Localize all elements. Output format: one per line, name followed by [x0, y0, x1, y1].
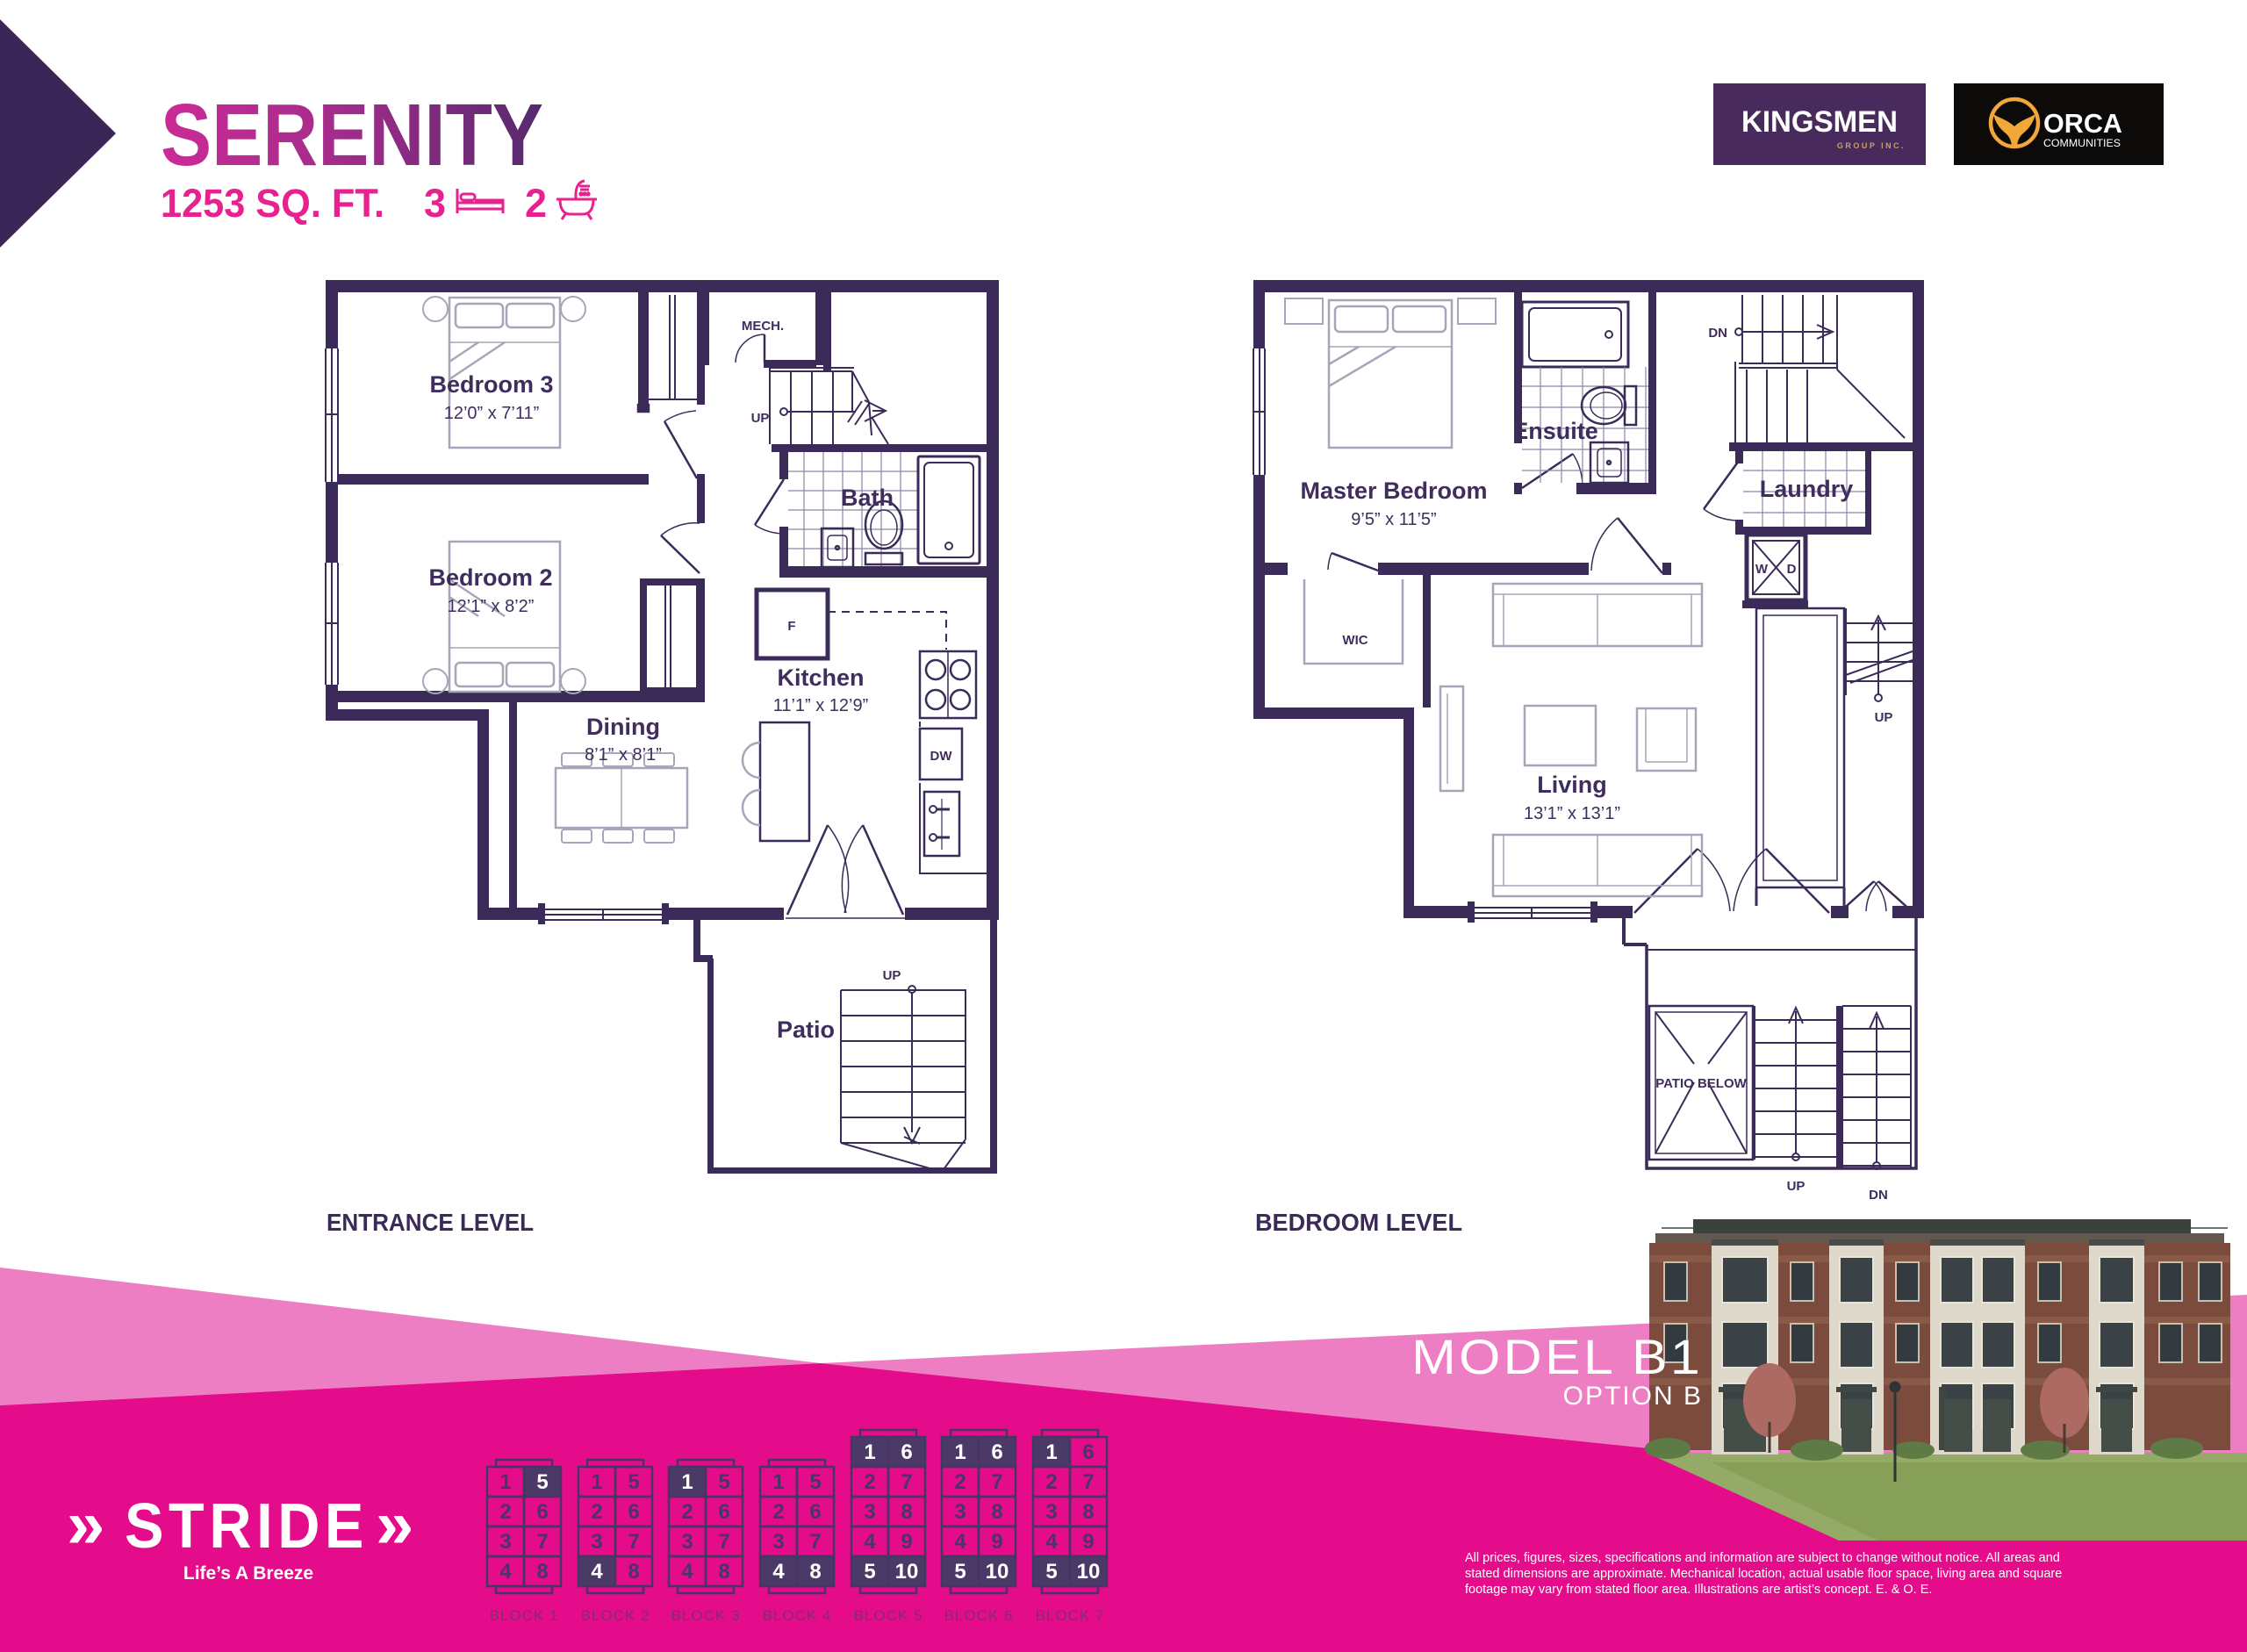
svg-text:4: 4	[954, 1530, 966, 1554]
svg-text:Bedroom 3: Bedroom 3	[429, 371, 553, 398]
svg-text:2: 2	[681, 1500, 693, 1524]
svg-text:All prices, figures, sizes, sp: All prices, figures, sizes, specificatio…	[1465, 1551, 2060, 1565]
svg-text:BEDROOM LEVEL: BEDROOM LEVEL	[1255, 1209, 1462, 1236]
svg-text:BLOCK 3: BLOCK 3	[671, 1607, 741, 1624]
svg-text:BLOCK 5: BLOCK 5	[854, 1607, 923, 1624]
svg-text:3: 3	[772, 1530, 784, 1554]
svg-text:3: 3	[954, 1500, 966, 1524]
svg-text:8’1” x 8’1”: 8’1” x 8’1”	[585, 745, 662, 765]
svg-text:8: 8	[901, 1500, 912, 1524]
svg-text:9: 9	[901, 1530, 912, 1554]
svg-text:6: 6	[991, 1440, 1002, 1464]
svg-text:MECH.: MECH.	[742, 319, 784, 334]
svg-text:2: 2	[772, 1500, 784, 1524]
svg-text:6: 6	[536, 1500, 548, 1524]
svg-text:6: 6	[628, 1500, 639, 1524]
svg-text:Patio: Patio	[777, 1016, 835, 1043]
svg-text:8: 8	[536, 1560, 548, 1584]
svg-text:9: 9	[991, 1530, 1002, 1554]
svg-text:Bath: Bath	[841, 485, 894, 511]
svg-text:7: 7	[628, 1530, 639, 1554]
svg-text:Laundry: Laundry	[1760, 476, 1854, 502]
svg-text:UP: UP	[751, 411, 770, 426]
svg-text:PATIO BELOW: PATIO BELOW	[1655, 1076, 1747, 1091]
svg-text:Kitchen: Kitchen	[777, 664, 864, 691]
svg-text:5: 5	[954, 1560, 966, 1584]
svg-text:2: 2	[954, 1470, 966, 1494]
svg-text:UP: UP	[1787, 1179, 1805, 1194]
svg-text:5: 5	[809, 1470, 821, 1494]
svg-text:6: 6	[901, 1440, 912, 1464]
svg-text:6: 6	[1082, 1440, 1094, 1464]
svg-text:KINGSMEN: KINGSMEN	[1741, 105, 1898, 139]
svg-text:5: 5	[536, 1470, 548, 1494]
svg-text:7: 7	[991, 1470, 1002, 1494]
svg-text:5: 5	[718, 1470, 729, 1494]
svg-text:1: 1	[954, 1440, 966, 1464]
svg-text:UP: UP	[883, 968, 901, 983]
svg-text:Ensuite: Ensuite	[1512, 418, 1598, 444]
svg-text:13’1” x 13’1”: 13’1” x 13’1”	[1524, 804, 1620, 823]
svg-text:8: 8	[1082, 1500, 1094, 1524]
svg-text:3: 3	[1045, 1500, 1057, 1524]
svg-text:Dining: Dining	[586, 714, 660, 740]
svg-text:12’1” x 8’2”: 12’1” x 8’2”	[448, 597, 535, 616]
svg-text:DN: DN	[1869, 1188, 1888, 1203]
svg-text:2: 2	[864, 1470, 875, 1494]
svg-text:6: 6	[809, 1500, 821, 1524]
svg-text:F: F	[787, 619, 795, 634]
svg-text:DN: DN	[1708, 326, 1727, 341]
svg-text:9: 9	[1082, 1530, 1094, 1554]
svg-text:2: 2	[499, 1500, 511, 1524]
svg-text:7: 7	[809, 1530, 821, 1554]
svg-text:3: 3	[681, 1530, 693, 1554]
svg-text:10: 10	[895, 1560, 919, 1584]
svg-text:1253 SQ. FT.: 1253 SQ. FT.	[161, 181, 384, 226]
svg-text:4: 4	[1045, 1530, 1058, 1554]
svg-text:8: 8	[991, 1500, 1002, 1524]
svg-text:GROUP INC.: GROUP INC.	[1837, 141, 1906, 150]
svg-text:3: 3	[591, 1530, 602, 1554]
svg-text:4: 4	[864, 1530, 876, 1554]
svg-text:5: 5	[1045, 1560, 1057, 1584]
svg-text:Bedroom 2: Bedroom 2	[428, 564, 552, 591]
svg-text:D: D	[1787, 562, 1797, 577]
svg-text:1: 1	[499, 1470, 511, 1494]
svg-text:7: 7	[718, 1530, 729, 1554]
svg-text:ORCA: ORCA	[2043, 108, 2122, 139]
svg-text:8: 8	[718, 1560, 729, 1584]
svg-text:7: 7	[536, 1530, 548, 1554]
svg-text:BLOCK 2: BLOCK 2	[581, 1607, 650, 1624]
svg-text:SERENITY: SERENITY	[161, 86, 543, 184]
svg-text:W: W	[1755, 562, 1769, 577]
svg-text:6: 6	[718, 1500, 729, 1524]
svg-text:8: 8	[628, 1560, 639, 1584]
svg-text:2: 2	[1045, 1470, 1057, 1494]
svg-text:WIC: WIC	[1342, 633, 1368, 648]
svg-text:1: 1	[772, 1470, 784, 1494]
svg-text:1: 1	[591, 1470, 602, 1494]
svg-text:Life’s A Breeze: Life’s A Breeze	[183, 1563, 313, 1584]
svg-text:10: 10	[1077, 1560, 1101, 1584]
svg-text:7: 7	[901, 1470, 912, 1494]
svg-text:4: 4	[681, 1560, 693, 1584]
svg-text:BLOCK 4: BLOCK 4	[763, 1607, 832, 1624]
svg-text:2: 2	[591, 1500, 602, 1524]
svg-text:4: 4	[499, 1560, 512, 1584]
svg-text:»: »	[67, 1485, 104, 1562]
svg-text:UP: UP	[1875, 710, 1893, 725]
svg-text:COMMUNITIES: COMMUNITIES	[2043, 137, 2121, 149]
svg-text:4: 4	[591, 1560, 603, 1584]
svg-text:footage may vary from stated f: footage may vary from stated floor area.…	[1465, 1583, 1932, 1597]
svg-text:3: 3	[499, 1530, 511, 1554]
svg-text:Living: Living	[1537, 772, 1607, 798]
svg-text:2: 2	[525, 181, 547, 226]
svg-text:Master Bedroom: Master Bedroom	[1300, 478, 1487, 504]
svg-text:11’1” x 12’9”: 11’1” x 12’9”	[773, 696, 869, 715]
svg-text:9’5” x 11’5”: 9’5” x 11’5”	[1351, 510, 1436, 529]
svg-text:4: 4	[772, 1560, 785, 1584]
svg-text:BLOCK 1: BLOCK 1	[490, 1607, 559, 1624]
svg-text:ENTRANCE LEVEL: ENTRANCE LEVEL	[327, 1209, 534, 1236]
svg-text:5: 5	[628, 1470, 639, 1494]
svg-text:5: 5	[864, 1560, 875, 1584]
svg-text:8: 8	[809, 1560, 821, 1584]
svg-text:DW: DW	[930, 749, 953, 764]
svg-text:BLOCK 6: BLOCK 6	[944, 1607, 1014, 1624]
svg-text:stated dimensions are approxim: stated dimensions are approximate. Mecha…	[1465, 1567, 2062, 1581]
svg-text:1: 1	[1045, 1440, 1057, 1464]
svg-text:MODEL B1: MODEL B1	[1411, 1329, 1703, 1384]
svg-text:BLOCK 7: BLOCK 7	[1036, 1607, 1105, 1624]
svg-text:STRIDE: STRIDE	[125, 1491, 369, 1562]
svg-text:7: 7	[1082, 1470, 1094, 1494]
svg-text:3: 3	[424, 181, 446, 226]
svg-text:»: »	[376, 1485, 413, 1562]
svg-text:1: 1	[864, 1440, 875, 1464]
svg-text:10: 10	[986, 1560, 1009, 1584]
svg-text:12’0” x 7’11”: 12’0” x 7’11”	[444, 404, 540, 423]
svg-text:OPTION B: OPTION B	[1563, 1382, 1703, 1411]
svg-text:3: 3	[864, 1500, 875, 1524]
svg-text:1: 1	[681, 1470, 693, 1494]
